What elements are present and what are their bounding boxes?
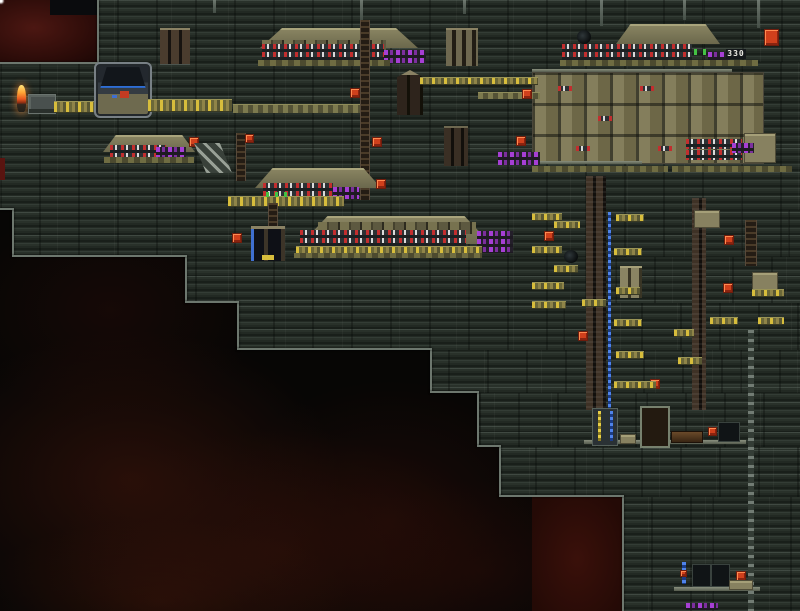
red-storage-box[interactable] xyxy=(764,29,779,46)
conveyor-belt-items[interactable] xyxy=(148,99,232,112)
nebula-cloud xyxy=(60,430,500,611)
belt-items-red-white xyxy=(576,146,590,151)
vertical-conveyor-pair[interactable] xyxy=(692,198,706,410)
vertical-belt-bank[interactable] xyxy=(160,28,190,65)
conveyor-belt-items[interactable] xyxy=(710,317,738,325)
hull-edge xyxy=(237,348,432,350)
hull-edge xyxy=(237,303,239,350)
hull-edge xyxy=(499,447,501,497)
hull-edge xyxy=(430,350,432,393)
hull-edge xyxy=(0,62,99,64)
hull-edge xyxy=(477,393,479,447)
conveyor-belt[interactable] xyxy=(532,166,668,172)
belt-items-purple xyxy=(686,603,718,610)
red-storage-box[interactable] xyxy=(522,89,532,99)
conveyor-belt-items[interactable] xyxy=(758,317,784,325)
large-processing-machine[interactable] xyxy=(94,62,152,118)
red-storage-box[interactable] xyxy=(724,235,734,245)
red-storage-box[interactable] xyxy=(376,179,386,189)
red-storage-box[interactable] xyxy=(372,137,382,147)
hull-edge xyxy=(477,445,501,447)
deck-edge-line xyxy=(532,161,642,164)
hull-rail xyxy=(748,330,754,611)
conveyor-belt-items[interactable] xyxy=(752,289,784,297)
platform-deck-band xyxy=(185,257,800,303)
pipe-blue[interactable] xyxy=(608,212,611,410)
belt-stub xyxy=(262,255,274,260)
hull-seam-line xyxy=(213,0,216,13)
machine-row-platform[interactable] xyxy=(616,24,720,44)
vertical-belt-bank[interactable] xyxy=(446,28,478,66)
small-module[interactable] xyxy=(28,94,56,114)
vertical-belt-bank[interactable] xyxy=(444,126,468,166)
flare-stack-flame xyxy=(17,85,26,112)
tan-machine[interactable] xyxy=(620,434,636,444)
red-storage-box[interactable] xyxy=(232,233,242,243)
conveyor-belt[interactable] xyxy=(560,60,758,66)
hull-edge xyxy=(185,301,239,303)
belt-items-purple xyxy=(384,50,426,63)
red-storage-box[interactable] xyxy=(708,427,717,436)
conveyor-belt-items[interactable] xyxy=(228,196,344,207)
pipe-yellow[interactable] xyxy=(598,411,601,441)
platform-deck-band xyxy=(622,497,800,611)
framed-machine[interactable] xyxy=(640,406,670,448)
platform-deck-band xyxy=(499,447,800,497)
conveyor-belt-items[interactable] xyxy=(532,301,566,309)
hull-edge xyxy=(97,0,99,62)
red-storage-box[interactable] xyxy=(245,134,254,143)
hull-edge xyxy=(430,391,479,393)
round-tank[interactable] xyxy=(564,250,578,263)
vertical-conveyor-pair[interactable] xyxy=(586,176,606,410)
pipe-mount[interactable] xyxy=(592,408,618,446)
round-tank[interactable] xyxy=(577,30,591,44)
hull-edge xyxy=(0,208,14,210)
conveyor-belt-items[interactable] xyxy=(614,248,642,256)
belt-items-red-white xyxy=(640,86,654,91)
red-storage-box[interactable] xyxy=(680,570,687,577)
hull-edge xyxy=(185,257,187,303)
star xyxy=(0,0,1,1)
conveyor-belt-items[interactable] xyxy=(678,357,702,365)
belt-items-green xyxy=(266,192,292,197)
vertical-conveyor[interactable] xyxy=(745,220,757,266)
conveyor-belt[interactable] xyxy=(104,157,194,163)
red-storage-box[interactable] xyxy=(578,331,588,341)
hull-seam-line xyxy=(683,0,686,20)
belt-items-red-white xyxy=(562,44,692,60)
conveyor-belt-items[interactable] xyxy=(532,246,562,254)
conveyor-belt-items[interactable] xyxy=(616,287,640,295)
nebula-cloud xyxy=(0,330,340,611)
nebula-square xyxy=(532,495,622,611)
nebula-cloud xyxy=(0,520,350,611)
conveyor-belt-items[interactable] xyxy=(582,299,606,307)
tan-machine[interactable] xyxy=(694,210,720,228)
conveyor-belt-items[interactable] xyxy=(420,77,538,85)
conveyor-belt[interactable] xyxy=(233,104,361,113)
hull-edge xyxy=(12,210,14,257)
belt-items-red-white xyxy=(658,146,672,151)
conveyor-belt[interactable] xyxy=(258,60,390,66)
belt-items-red-white xyxy=(300,230,466,246)
red-storage-box[interactable] xyxy=(544,231,554,241)
belt-items-red-white xyxy=(598,116,612,121)
dark-crate[interactable] xyxy=(711,564,730,587)
hull-seam-line xyxy=(757,0,760,28)
hull-seam-line xyxy=(360,0,363,20)
conveyor-belt-items[interactable] xyxy=(554,265,578,273)
hull-edge xyxy=(12,255,187,257)
conveyor-belt[interactable] xyxy=(294,253,482,258)
conveyor-belt-items[interactable] xyxy=(616,214,644,222)
belt-items-purple xyxy=(477,231,513,253)
counter-display: 330 xyxy=(726,49,746,59)
conveyor-belt-items[interactable] xyxy=(614,319,642,327)
belt-items-purple xyxy=(498,152,540,165)
belt-items-purple xyxy=(732,143,754,153)
hull-edge xyxy=(499,495,624,497)
red-marking xyxy=(0,158,5,180)
conveyor-belt-items[interactable] xyxy=(532,282,564,290)
red-storage-box[interactable] xyxy=(350,88,360,98)
hull-seam-line xyxy=(463,0,466,14)
tan-machine[interactable] xyxy=(729,580,753,590)
conveyor-belt-items[interactable] xyxy=(554,221,580,229)
conveyor-belt-items[interactable] xyxy=(674,329,694,337)
dark-crate[interactable] xyxy=(692,564,711,587)
belt-items-red-white xyxy=(558,86,572,91)
red-storage-box[interactable] xyxy=(516,136,526,146)
conveyor-belt-items[interactable] xyxy=(616,351,644,359)
red-storage-box[interactable] xyxy=(723,283,733,293)
conveyor-belt[interactable] xyxy=(672,166,792,172)
pipe-blue[interactable] xyxy=(610,411,613,441)
hull-edge xyxy=(622,497,624,611)
conveyor-belt-items[interactable] xyxy=(614,381,656,389)
conveyor-belt-items[interactable] xyxy=(532,213,562,221)
space-platform-scene: Factorio-style space platform factory vi… xyxy=(0,0,800,611)
brown-module[interactable] xyxy=(671,431,703,443)
dark-crate[interactable] xyxy=(718,422,740,442)
hull-seam-line xyxy=(600,0,603,26)
platform-deck-band xyxy=(237,303,800,350)
dark-notch xyxy=(50,0,97,15)
